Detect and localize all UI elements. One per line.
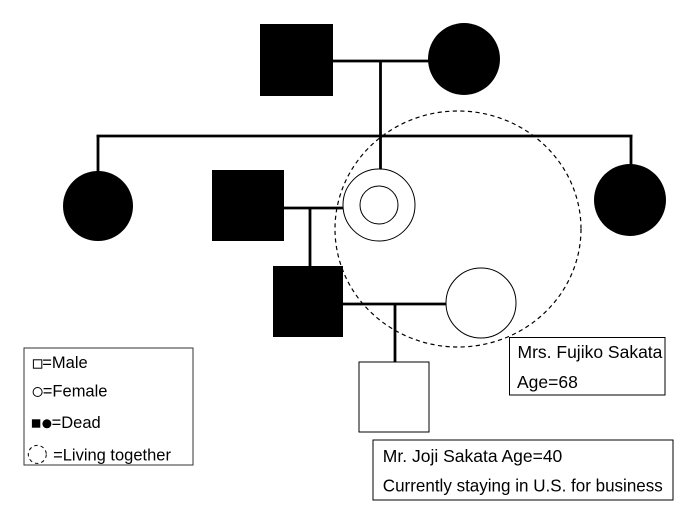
svg-text:=Living together: =Living together xyxy=(53,447,171,465)
svg-text:Currently staying in U.S. for: Currently staying in U.S. for business xyxy=(383,476,663,496)
svg-text:=Female: =Female xyxy=(43,383,108,401)
svg-text:=Dead: =Dead xyxy=(52,414,101,432)
svg-text:Mrs. Fujiko Sakata: Mrs. Fujiko Sakata xyxy=(518,342,663,362)
svg-text:Age=68: Age=68 xyxy=(517,372,578,392)
svg-text:=Male: =Male xyxy=(42,354,87,372)
svg-text:Mr. Joji Sakata Age=40: Mr. Joji Sakata Age=40 xyxy=(383,446,563,466)
